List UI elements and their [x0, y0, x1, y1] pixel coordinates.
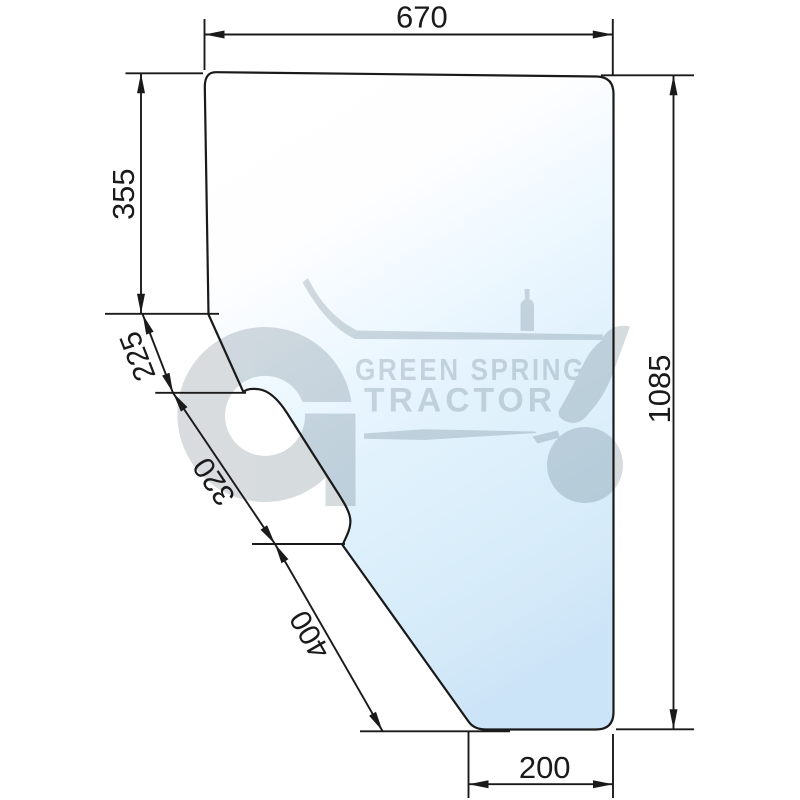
svg-text:200: 200: [519, 750, 571, 785]
svg-text:670: 670: [396, 0, 448, 34]
svg-text:355: 355: [106, 168, 141, 220]
svg-text:1085: 1085: [642, 355, 677, 424]
svg-text:TRACTOR: TRACTOR: [364, 382, 556, 420]
